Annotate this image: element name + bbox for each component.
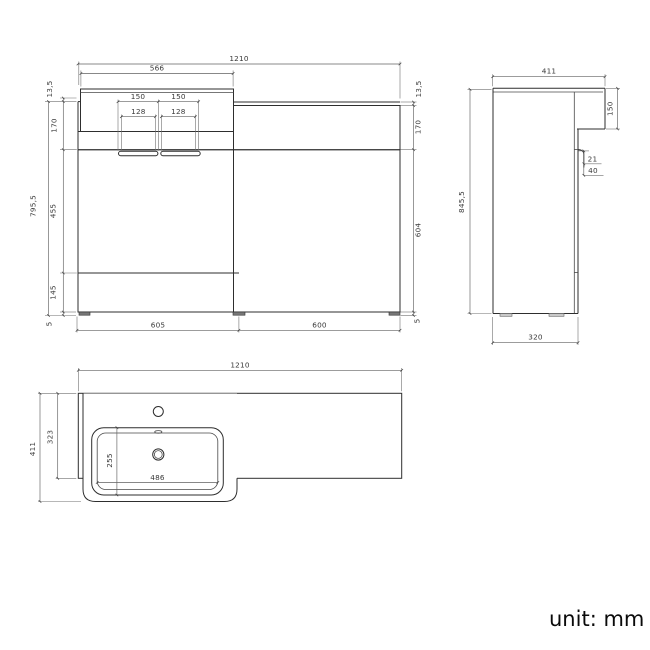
plan-outline xyxy=(78,393,401,501)
unit-note: unit: mm xyxy=(549,607,644,631)
side-handle-profile xyxy=(578,150,584,168)
side-extension-lines xyxy=(468,74,621,345)
front-foot-right xyxy=(389,312,400,315)
side-dimension-lines xyxy=(470,77,618,343)
dim-front-handle1-width: 150 xyxy=(131,92,146,101)
dim-side-depth: 411 xyxy=(542,67,557,76)
dim-front-top-thickness-left: 13,5 xyxy=(45,80,54,97)
side-outline xyxy=(493,88,605,316)
side-profile-view: 411 150 21 40 845,5 320 xyxy=(457,67,620,345)
front-elevation-view: 1210 566 150 150 128 128 13,5 170 455 14… xyxy=(29,54,424,333)
side-foot-back xyxy=(500,314,512,317)
dim-front-door-height: 455 xyxy=(49,204,58,219)
dim-front-handle2-inner: 128 xyxy=(171,107,186,116)
front-handle-left xyxy=(119,151,158,155)
dim-front-right-door-height: 604 xyxy=(414,223,423,238)
front-foot-middle xyxy=(233,312,245,315)
dim-front-handle1-inner: 128 xyxy=(131,107,146,116)
dim-side-overall-height: 845,5 xyxy=(457,191,466,213)
dim-front-foot-left: 5 xyxy=(45,322,54,327)
dim-front-left-unit-width: 605 xyxy=(151,320,166,329)
side-dimension-labels: 411 150 21 40 845,5 320 xyxy=(457,67,615,342)
front-counter-apron xyxy=(81,89,234,132)
dim-side-handle-depth: 40 xyxy=(588,166,598,175)
vanity-dimension-drawing: 1210 566 150 150 128 128 13,5 170 455 14… xyxy=(0,0,650,650)
side-foot-front xyxy=(549,314,564,317)
dim-front-overall-height: 795,5 xyxy=(29,195,38,217)
dim-front-apron-left: 170 xyxy=(50,118,59,133)
dim-plan-basin-depth: 255 xyxy=(105,453,114,468)
dim-front-handle2-width: 150 xyxy=(171,92,186,101)
dim-side-counter-drop: 150 xyxy=(606,101,615,116)
dim-front-overall-width: 1210 xyxy=(229,54,249,63)
front-right-fluted-doors xyxy=(234,106,401,313)
dim-plan-basin-width: 486 xyxy=(150,473,165,482)
dim-side-cabinet-depth: 320 xyxy=(528,333,543,342)
dim-plan-counter-depth: 323 xyxy=(46,430,55,445)
plan-basin-unit-fill xyxy=(83,394,237,502)
dim-front-foot-right: 5 xyxy=(413,319,422,324)
front-left-fluted-doors xyxy=(78,132,234,313)
plan-top-view: 1210 411 323 255 486 xyxy=(28,360,402,501)
dim-front-counter-width: 566 xyxy=(150,64,165,73)
front-handle-right xyxy=(161,151,200,155)
dim-front-right-unit-width: 600 xyxy=(312,320,327,329)
dim-front-drawer-height: 145 xyxy=(49,285,58,300)
dim-front-top-thickness-right: 13,5 xyxy=(414,80,423,97)
dim-side-handle-offset: 21 xyxy=(588,155,598,164)
dim-front-apron-right: 170 xyxy=(414,120,423,135)
technical-drawing-page: 1210 566 150 150 128 128 13,5 170 455 14… xyxy=(0,0,650,650)
dim-plan-overall-width: 1210 xyxy=(230,360,250,369)
dim-plan-overall-depth: 411 xyxy=(28,442,37,457)
front-foot-left xyxy=(79,312,90,315)
